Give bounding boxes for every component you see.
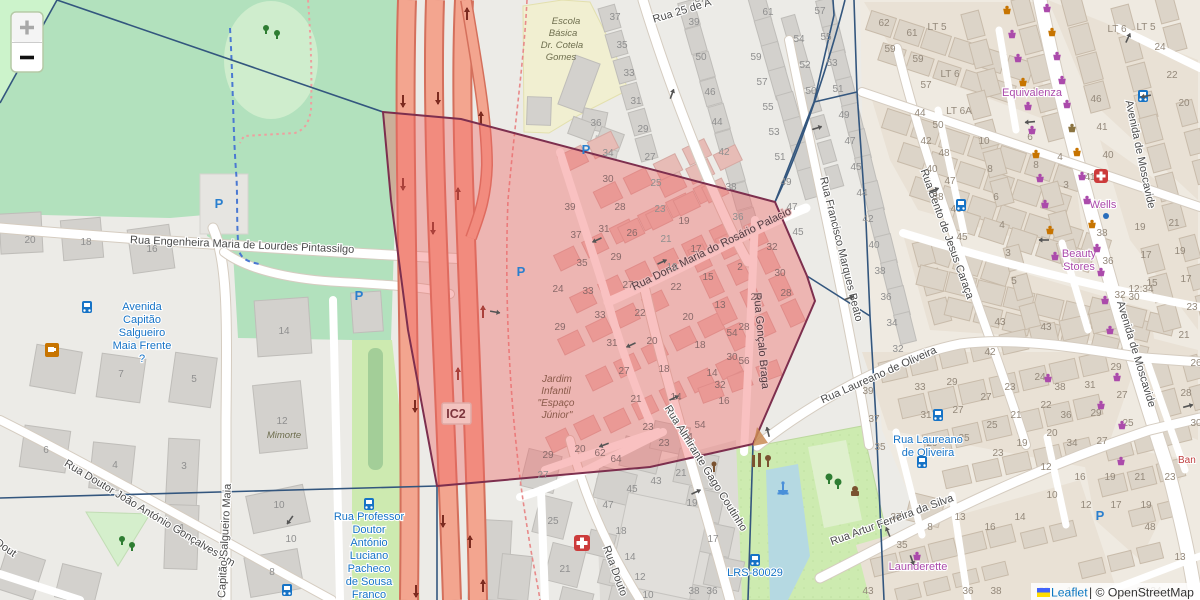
svg-text:23: 23 <box>654 204 666 215</box>
svg-text:20: 20 <box>682 312 694 323</box>
svg-text:37: 37 <box>868 414 880 425</box>
svg-text:"Espaço: "Espaço <box>538 398 575 409</box>
svg-text:22: 22 <box>1040 400 1052 411</box>
svg-text:6: 6 <box>43 445 49 456</box>
svg-text:20: 20 <box>646 336 658 347</box>
svg-text:29: 29 <box>1090 408 1102 419</box>
svg-text:37: 37 <box>609 12 621 23</box>
svg-text:50: 50 <box>932 120 944 131</box>
svg-text:8: 8 <box>269 567 275 578</box>
svg-text:17: 17 <box>690 244 702 255</box>
svg-text:10: 10 <box>285 534 297 545</box>
svg-text:19: 19 <box>678 216 690 227</box>
svg-text:13: 13 <box>714 300 726 311</box>
svg-text:33: 33 <box>582 286 594 297</box>
svg-text:P: P <box>215 196 224 211</box>
svg-text:12: 12 <box>1040 462 1052 473</box>
svg-text:44: 44 <box>856 188 868 199</box>
svg-text:LRS-80029: LRS-80029 <box>727 567 783 579</box>
svg-text:31: 31 <box>630 96 642 107</box>
svg-text:33: 33 <box>623 68 635 79</box>
svg-text:27: 27 <box>952 405 964 416</box>
svg-text:48: 48 <box>938 148 950 159</box>
svg-text:48: 48 <box>1144 522 1156 533</box>
svg-text:36: 36 <box>1102 256 1114 267</box>
svg-text:19: 19 <box>1134 222 1146 233</box>
svg-text:29: 29 <box>946 377 958 388</box>
svg-text:Wells: Wells <box>1090 199 1117 211</box>
svg-text:38: 38 <box>990 586 1002 597</box>
svg-text:21: 21 <box>630 394 642 405</box>
svg-text:36: 36 <box>1060 410 1072 421</box>
svg-text:10: 10 <box>642 590 654 600</box>
svg-text:20: 20 <box>1046 428 1058 439</box>
svg-text:45: 45 <box>626 484 638 495</box>
svg-text:27: 27 <box>644 152 656 163</box>
svg-text:27: 27 <box>980 392 992 403</box>
svg-text:23: 23 <box>658 438 670 449</box>
svg-text:32: 32 <box>1114 290 1126 301</box>
svg-text:13: 13 <box>1174 552 1186 563</box>
svg-text:20: 20 <box>1178 98 1190 109</box>
svg-text:54: 54 <box>694 420 706 431</box>
svg-text:23: 23 <box>1164 472 1176 483</box>
svg-text:24: 24 <box>1034 372 1046 383</box>
svg-text:55: 55 <box>762 102 774 113</box>
svg-text:16: 16 <box>1074 472 1086 483</box>
svg-text:LT 6: LT 6 <box>1107 24 1127 35</box>
svg-text:Rua Professor: Rua Professor <box>334 511 405 523</box>
svg-text:12:34: 12:34 <box>1128 284 1153 295</box>
svg-text:40: 40 <box>1102 150 1114 161</box>
svg-text:64: 64 <box>610 454 622 465</box>
svg-text:21: 21 <box>1134 472 1146 483</box>
svg-text:8: 8 <box>927 522 933 533</box>
svg-text:30: 30 <box>774 268 786 279</box>
svg-text:15: 15 <box>702 272 714 283</box>
svg-text:28: 28 <box>780 288 792 299</box>
svg-text:35: 35 <box>576 258 588 269</box>
svg-text:49: 49 <box>780 177 792 188</box>
svg-text:32: 32 <box>766 242 778 253</box>
svg-text:16: 16 <box>984 522 996 533</box>
svg-text:18: 18 <box>615 526 627 537</box>
svg-text:13: 13 <box>954 512 966 523</box>
svg-text:29: 29 <box>542 450 554 461</box>
svg-text:8: 8 <box>1033 160 1039 171</box>
svg-text:55: 55 <box>820 32 832 43</box>
svg-text:33: 33 <box>594 310 606 321</box>
svg-text:P: P <box>582 142 591 157</box>
svg-text:6: 6 <box>993 192 999 203</box>
svg-text:Pacheco: Pacheco <box>348 563 391 575</box>
svg-text:22: 22 <box>1166 70 1178 81</box>
svg-text:Launderette: Launderette <box>889 561 948 573</box>
svg-text:LT 6: LT 6 <box>940 69 960 80</box>
svg-text:54: 54 <box>793 34 805 45</box>
svg-text:57: 57 <box>756 77 768 88</box>
svg-text:45: 45 <box>792 227 804 238</box>
svg-text:18: 18 <box>80 237 92 248</box>
svg-text:10: 10 <box>1046 490 1058 501</box>
svg-text:37: 37 <box>890 512 902 523</box>
svg-text:53: 53 <box>826 58 838 69</box>
svg-text:49: 49 <box>838 110 850 121</box>
svg-text:41: 41 <box>1096 122 1108 133</box>
svg-text:35: 35 <box>874 442 886 453</box>
svg-text:38: 38 <box>932 192 944 203</box>
svg-text:34: 34 <box>886 318 898 329</box>
svg-text:19: 19 <box>1016 438 1028 449</box>
svg-text:28: 28 <box>1180 388 1192 399</box>
svg-text:33: 33 <box>914 382 926 393</box>
svg-text:31: 31 <box>1084 380 1096 391</box>
svg-text:21: 21 <box>559 564 571 575</box>
svg-text:30: 30 <box>602 174 614 185</box>
svg-text:34: 34 <box>1066 438 1078 449</box>
svg-text:44: 44 <box>914 108 926 119</box>
svg-text:56: 56 <box>738 356 750 367</box>
svg-text:27: 27 <box>622 280 634 291</box>
svg-text:8: 8 <box>987 164 993 175</box>
svg-text:47: 47 <box>844 136 856 147</box>
svg-text:30: 30 <box>726 352 738 363</box>
svg-text:42: 42 <box>718 147 730 158</box>
svg-text:12: 12 <box>1080 500 1092 511</box>
svg-text:Escola: Escola <box>552 16 581 27</box>
svg-text:27: 27 <box>1096 436 1108 447</box>
svg-text:19: 19 <box>686 498 698 509</box>
svg-text:?: ? <box>139 353 145 365</box>
svg-text:25: 25 <box>547 516 559 527</box>
svg-text:32: 32 <box>714 380 726 391</box>
svg-text:18: 18 <box>694 340 706 351</box>
svg-text:22: 22 <box>634 308 646 319</box>
svg-text:Doutor: Doutor <box>352 524 385 536</box>
svg-text:4: 4 <box>999 220 1005 231</box>
svg-text:Rua Laureano: Rua Laureano <box>893 434 963 446</box>
svg-text:35: 35 <box>896 540 908 551</box>
svg-text:16: 16 <box>718 396 730 407</box>
svg-text:42: 42 <box>920 136 932 147</box>
svg-text:19: 19 <box>1140 500 1152 511</box>
svg-text:29: 29 <box>610 252 622 263</box>
svg-text:36: 36 <box>732 212 744 223</box>
svg-text:59: 59 <box>750 52 762 63</box>
svg-text:51: 51 <box>774 152 786 163</box>
svg-text:Salgueiro: Salgueiro <box>119 327 165 339</box>
svg-text:Leaflet: Leaflet <box>1051 586 1088 600</box>
svg-text:12: 12 <box>276 416 288 427</box>
svg-text:36: 36 <box>880 292 892 303</box>
svg-text:42: 42 <box>984 347 996 358</box>
svg-text:Básica: Básica <box>549 28 578 39</box>
svg-text:21: 21 <box>660 234 672 245</box>
svg-text:Mimorte: Mimorte <box>267 430 301 441</box>
svg-text:57: 57 <box>920 80 932 91</box>
svg-text:26: 26 <box>626 228 638 239</box>
svg-text:Equivalenza: Equivalenza <box>1002 87 1063 99</box>
svg-text:Jardim: Jardim <box>541 374 572 385</box>
svg-text:2: 2 <box>737 262 743 273</box>
svg-text:29: 29 <box>637 124 649 135</box>
svg-text:53: 53 <box>768 127 780 138</box>
svg-text:Ban: Ban <box>1178 455 1196 466</box>
svg-text:14: 14 <box>1014 512 1026 523</box>
svg-text:39: 39 <box>564 202 576 213</box>
svg-text:3: 3 <box>1005 248 1011 259</box>
svg-text:3: 3 <box>1063 180 1069 191</box>
svg-text:20: 20 <box>574 444 586 455</box>
svg-text:34: 34 <box>602 148 614 159</box>
svg-text:45: 45 <box>850 162 862 173</box>
svg-text:de Sousa: de Sousa <box>346 576 393 588</box>
svg-text:31: 31 <box>920 410 932 421</box>
svg-text:14: 14 <box>624 552 636 563</box>
svg-text:27: 27 <box>1116 390 1128 401</box>
svg-text:Stores: Stores <box>1063 261 1095 273</box>
svg-text:| © OpenStreetMap: | © OpenStreetMap <box>1089 586 1194 600</box>
svg-text:32: 32 <box>892 344 904 355</box>
svg-text:38: 38 <box>725 182 737 193</box>
svg-text:26: 26 <box>1190 358 1200 369</box>
svg-text:43: 43 <box>862 586 874 597</box>
svg-text:17: 17 <box>707 534 719 545</box>
svg-text:29: 29 <box>1110 362 1122 373</box>
svg-text:31: 31 <box>606 338 618 349</box>
svg-text:40: 40 <box>868 240 880 251</box>
svg-text:39: 39 <box>862 386 874 397</box>
svg-text:19: 19 <box>1174 246 1186 257</box>
svg-text:LT 6A: LT 6A <box>946 106 972 117</box>
svg-text:50: 50 <box>805 86 817 97</box>
svg-text:Luciano: Luciano <box>350 550 389 562</box>
svg-text:37: 37 <box>694 0 706 5</box>
svg-text:1: 1 <box>179 523 185 534</box>
svg-text:Gomes: Gomes <box>546 52 577 63</box>
svg-text:23: 23 <box>992 448 1004 459</box>
svg-text:47: 47 <box>602 500 614 511</box>
svg-text:47: 47 <box>786 202 798 213</box>
svg-text:25: 25 <box>986 420 998 431</box>
svg-text:62: 62 <box>878 18 890 29</box>
svg-text:P: P <box>1096 508 1105 523</box>
svg-text:23: 23 <box>1186 302 1198 313</box>
svg-text:Franco: Franco <box>352 589 386 600</box>
svg-text:54: 54 <box>726 328 738 339</box>
svg-text:36: 36 <box>706 586 718 597</box>
svg-text:22: 22 <box>670 282 682 293</box>
svg-text:44: 44 <box>711 117 723 128</box>
svg-text:38: 38 <box>874 266 886 277</box>
svg-text:19: 19 <box>666 262 678 273</box>
svg-text:14: 14 <box>278 326 290 337</box>
svg-text:59: 59 <box>912 54 924 65</box>
svg-text:26: 26 <box>750 292 762 303</box>
svg-text:46: 46 <box>1090 94 1102 105</box>
svg-text:P: P <box>355 288 364 303</box>
svg-text:31: 31 <box>598 224 610 235</box>
svg-text:38: 38 <box>688 586 700 597</box>
svg-text:50: 50 <box>695 52 707 63</box>
svg-text:21: 21 <box>1010 410 1022 421</box>
svg-text:27: 27 <box>618 366 630 377</box>
svg-text:20: 20 <box>24 235 36 246</box>
svg-text:43: 43 <box>650 476 662 487</box>
svg-text:23: 23 <box>1004 382 1016 393</box>
svg-text:61: 61 <box>906 28 918 39</box>
svg-text:5: 5 <box>1011 276 1017 287</box>
svg-text:António: António <box>350 537 387 549</box>
svg-text:35: 35 <box>616 40 628 51</box>
svg-text:4: 4 <box>687 432 693 443</box>
svg-text:38: 38 <box>1096 228 1108 239</box>
svg-text:51: 51 <box>832 84 844 95</box>
svg-text:59: 59 <box>884 44 896 55</box>
svg-text:38: 38 <box>1054 382 1066 393</box>
svg-text:39: 39 <box>688 17 700 28</box>
svg-text:24: 24 <box>1154 42 1166 53</box>
svg-text:4: 4 <box>112 460 118 471</box>
svg-text:Júnior": Júnior" <box>541 410 573 421</box>
svg-text:29: 29 <box>554 322 566 333</box>
svg-text:57: 57 <box>814 6 826 17</box>
svg-text:de Oliveira: de Oliveira <box>902 447 955 459</box>
svg-text:12: 12 <box>634 572 646 583</box>
svg-text:Beauty: Beauty <box>1062 248 1097 260</box>
svg-text:18: 18 <box>658 364 670 375</box>
svg-text:Avenida: Avenida <box>122 301 162 313</box>
svg-text:42: 42 <box>862 214 874 225</box>
svg-text:28: 28 <box>738 322 750 333</box>
svg-text:40: 40 <box>926 164 938 175</box>
svg-text:21: 21 <box>675 468 687 479</box>
svg-text:Infantil: Infantil <box>541 386 571 397</box>
svg-text:LT 5: LT 5 <box>1136 22 1156 33</box>
svg-text:Dr. Cotela: Dr. Cotela <box>541 40 583 51</box>
svg-text:Capitão: Capitão <box>123 314 161 326</box>
svg-text:36: 36 <box>962 586 974 597</box>
svg-text:27: 27 <box>537 470 549 481</box>
svg-text:36: 36 <box>590 118 602 129</box>
svg-text:4: 4 <box>1057 152 1063 163</box>
svg-text:5: 5 <box>191 374 197 385</box>
svg-text:45: 45 <box>956 232 968 243</box>
svg-text:19: 19 <box>1104 472 1116 483</box>
svg-text:28: 28 <box>614 202 626 213</box>
svg-text:21: 21 <box>1168 218 1180 229</box>
svg-text:61: 61 <box>762 7 774 18</box>
svg-text:17: 17 <box>1140 250 1152 261</box>
svg-text:43: 43 <box>1040 322 1052 333</box>
svg-text:14: 14 <box>706 368 718 379</box>
svg-text:10: 10 <box>978 136 990 147</box>
svg-text:46: 46 <box>704 87 716 98</box>
svg-text:62: 62 <box>594 448 606 459</box>
svg-text:47: 47 <box>944 176 956 187</box>
svg-text:Maia Frente: Maia Frente <box>113 340 172 352</box>
svg-text:24: 24 <box>552 284 564 295</box>
svg-text:52: 52 <box>799 60 811 71</box>
svg-text:10: 10 <box>273 500 285 511</box>
svg-text:37: 37 <box>570 230 582 241</box>
svg-text:23: 23 <box>642 422 654 433</box>
svg-text:25: 25 <box>650 178 662 189</box>
svg-text:7: 7 <box>118 369 124 380</box>
svg-text:3: 3 <box>181 461 187 472</box>
svg-text:LT 5: LT 5 <box>927 22 947 33</box>
svg-text:16: 16 <box>146 244 158 255</box>
svg-text:30: 30 <box>1190 418 1200 429</box>
svg-text:21: 21 <box>1178 330 1190 341</box>
svg-text:17: 17 <box>1110 500 1122 511</box>
svg-text:17: 17 <box>1180 274 1192 285</box>
svg-text:IC2: IC2 <box>446 407 466 421</box>
svg-text:P: P <box>517 264 526 279</box>
svg-text:43: 43 <box>994 317 1006 328</box>
